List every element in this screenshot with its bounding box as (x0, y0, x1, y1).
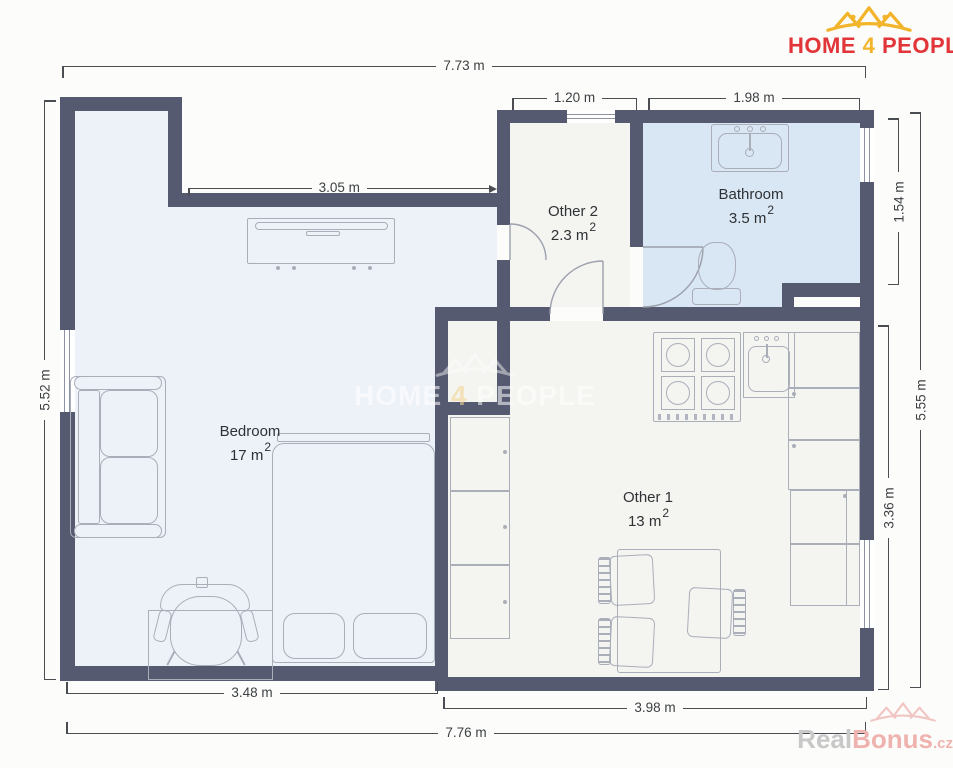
dimension-line (782, 98, 859, 99)
dimension-tick (636, 98, 638, 110)
bedroom-floor (435, 207, 497, 307)
sink-tap-dot (734, 126, 740, 132)
toilet-bowl (698, 242, 736, 290)
home4people-logo: HOME 4 PEOPLE (788, 5, 950, 59)
room-area: 3.5 m2 (676, 204, 826, 228)
room-label-bedroom: Bedroom 17 m2 (175, 422, 325, 465)
dimension-tick (44, 679, 56, 681)
dimension-line (650, 98, 727, 99)
sink-tap-dot (754, 336, 759, 341)
tv-stand (306, 231, 340, 236)
realbonus-watermark: RealBonus.cz (796, 698, 953, 757)
dimension-line (514, 98, 547, 99)
dining-chair-seat (609, 616, 656, 668)
cabinet-foot (276, 266, 280, 270)
dimension-tick (512, 98, 514, 110)
room-label-bathroom: Bathroom 3.5 m2 (676, 185, 826, 228)
dimension-line (44, 420, 45, 679)
window-top-wall (567, 110, 615, 123)
wall-bottom-other1 (435, 677, 874, 691)
stove-burner-ring (666, 343, 690, 367)
sink-tap-dot (764, 336, 769, 341)
dimension-line (492, 66, 865, 67)
sink-faucet-head (745, 148, 754, 157)
brand-wordmark: HOME 4 PEOPLE (788, 33, 950, 59)
dimension-line (44, 102, 45, 361)
window-pane-line (869, 540, 870, 628)
tv-screen (255, 222, 388, 230)
dimension-label: 3.05 m (312, 178, 367, 198)
dimension-tick (910, 687, 921, 689)
dimension-bathroom-width: 1.98 m (648, 88, 860, 108)
dining-chair-seat (687, 587, 734, 639)
bed-pillow (283, 613, 345, 659)
kitchen-counter (788, 332, 860, 388)
dimension-bedroom-upper-width: 3.05 m (188, 178, 497, 198)
kitchen-cabinet (790, 544, 860, 606)
wall-step-vertical (168, 97, 182, 207)
dimension-line (445, 708, 628, 709)
room-area: 2.3 m2 (498, 221, 648, 245)
sofa-armrest (74, 376, 162, 390)
cabinet-knob (843, 494, 847, 498)
toilet-tank (692, 288, 741, 305)
kitchen-counter (788, 440, 860, 490)
dimension-label: 3.48 m (224, 683, 279, 703)
dimension-bathroom-height: 1.54 m (888, 118, 910, 285)
wall-mid-right (603, 307, 874, 321)
dimension-line (888, 538, 889, 689)
wall-closet-horizontal (435, 402, 510, 415)
dimension-line (920, 114, 921, 371)
dimension-tick (878, 689, 889, 691)
stove-burner-ring (706, 343, 730, 367)
dimension-tick (648, 98, 650, 110)
wall-right-middle (860, 182, 874, 540)
dimension-line (888, 327, 889, 478)
room-label-other2: Other 2 2.3 m2 (498, 202, 648, 245)
dimension-line (367, 188, 489, 189)
dimension-label: 1.54 m (888, 172, 910, 232)
stove-burner-ring (666, 381, 690, 405)
dimension-top-total: 7.73 m (62, 56, 866, 76)
room-name: Other 1 (573, 488, 723, 507)
dimension-label: 7.73 m (436, 56, 491, 76)
dimension-line (68, 733, 439, 734)
sofa-back (78, 390, 100, 524)
sofa-armrest (74, 524, 162, 538)
wardrobe (450, 417, 510, 491)
dimension-line (898, 232, 899, 284)
dimension-label: 5.55 m (910, 370, 932, 430)
cabinet-foot (368, 266, 372, 270)
dimension-tick (888, 284, 899, 286)
dimension-tick (865, 66, 867, 78)
kitchen-counter (788, 388, 860, 440)
wall-right-upper (860, 110, 874, 128)
cabinet-divider-line (846, 491, 847, 543)
wardrobe-knob (503, 600, 507, 604)
room-area: 17 m2 (175, 441, 325, 465)
cabinet-foot (292, 266, 296, 270)
cabinet-knob (792, 444, 796, 448)
wall-top-bathroom (615, 110, 874, 123)
room-name: Bedroom (175, 422, 325, 441)
kitchen-cabinet (790, 490, 860, 544)
bedroom-floor (75, 111, 168, 207)
wall-bedroom-other1-divider (435, 321, 448, 690)
cabinet-divider-line (846, 545, 847, 605)
dimension-line (602, 98, 635, 99)
sink-tap-dot (747, 126, 753, 132)
dimension-left-height: 5.52 m (34, 100, 56, 680)
stove-burner-ring (706, 381, 730, 405)
dimension-label: 7.76 m (438, 723, 493, 743)
dimension-tick (62, 66, 64, 78)
window-pane-line (864, 540, 865, 628)
wardrobe-knob (503, 450, 507, 454)
dining-chair-back (733, 589, 746, 636)
window-bathroom-right (860, 128, 874, 182)
sofa-cushion (100, 457, 158, 524)
chair-seat (170, 596, 242, 666)
wall-mid-left (435, 307, 550, 321)
wall-top-bedroom (60, 97, 182, 111)
dimension-label: 1.98 m (726, 88, 781, 108)
dimension-other2-width: 1.20 m (512, 88, 637, 108)
cabinet-foot (352, 266, 356, 270)
dimension-tick (859, 98, 861, 110)
floor-plan: Bedroom 17 m2 Other 2 2.3 m2 Bathroom 3.… (0, 0, 953, 768)
room-area: 13 m2 (573, 507, 723, 531)
dimension-line (64, 66, 437, 67)
sofa-cushion (100, 390, 158, 457)
dimension-label: 3.98 m (627, 698, 682, 718)
window-pane-line (567, 114, 615, 115)
room-name: Other 2 (498, 202, 648, 221)
dimension-arrow (489, 185, 497, 193)
window-pane-line (864, 128, 865, 182)
dimension-tick (44, 100, 56, 102)
wardrobe-knob (503, 525, 507, 529)
room-label-other1: Other 1 13 m2 (573, 488, 723, 531)
dimension-label: 3.36 m (878, 478, 900, 538)
window-pane-line (869, 128, 870, 182)
dimension-bottom-total: 7.76 m (66, 723, 866, 743)
dimension-line (190, 188, 312, 189)
window-other1-right (860, 540, 874, 628)
dimension-line (68, 693, 225, 694)
wardrobe (450, 491, 510, 565)
dining-chair-seat (609, 554, 656, 606)
wall-closet-vertical (497, 321, 510, 415)
window-pane-line (64, 330, 65, 412)
dimension-line (898, 120, 899, 172)
room-name: Bathroom (676, 185, 826, 204)
sink-tap-dot (760, 126, 766, 132)
dimension-label: 5.52 m (34, 360, 56, 420)
realbonus-wordmark: RealBonus.cz (796, 726, 953, 757)
dimension-other1-height: 3.36 m (878, 325, 900, 690)
window-pane-line (567, 118, 615, 119)
dimension-line (280, 693, 437, 694)
wardrobe (450, 565, 510, 639)
stove-control-strip (658, 414, 736, 420)
dimension-right-height: 5.55 m (910, 112, 932, 688)
dimension-line (920, 430, 921, 687)
bed-pillow (353, 613, 427, 659)
sink-tap-dot (774, 336, 779, 341)
cabinet-knob (792, 392, 796, 396)
dimension-tick (188, 188, 190, 196)
sink-faucet-head (762, 355, 770, 363)
wall-bathroom-bottom (782, 283, 874, 297)
dimension-label: 1.20 m (547, 88, 602, 108)
home4people-crown-icon (821, 5, 917, 33)
dimension-bedroom-bottom-width: 3.48 m (66, 683, 438, 703)
wall-top-other2 (497, 110, 567, 123)
realbonus-crown-icon (867, 698, 939, 726)
kitchen-sink-basin (748, 346, 790, 392)
dimension-tick (437, 682, 439, 694)
